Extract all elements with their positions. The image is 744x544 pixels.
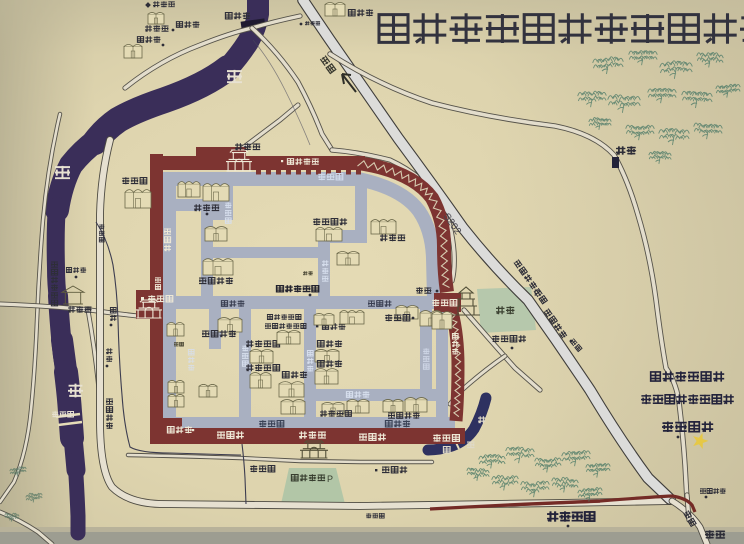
svg-text:P: P — [327, 474, 333, 484]
svg-text:P.: P. — [534, 288, 541, 298]
